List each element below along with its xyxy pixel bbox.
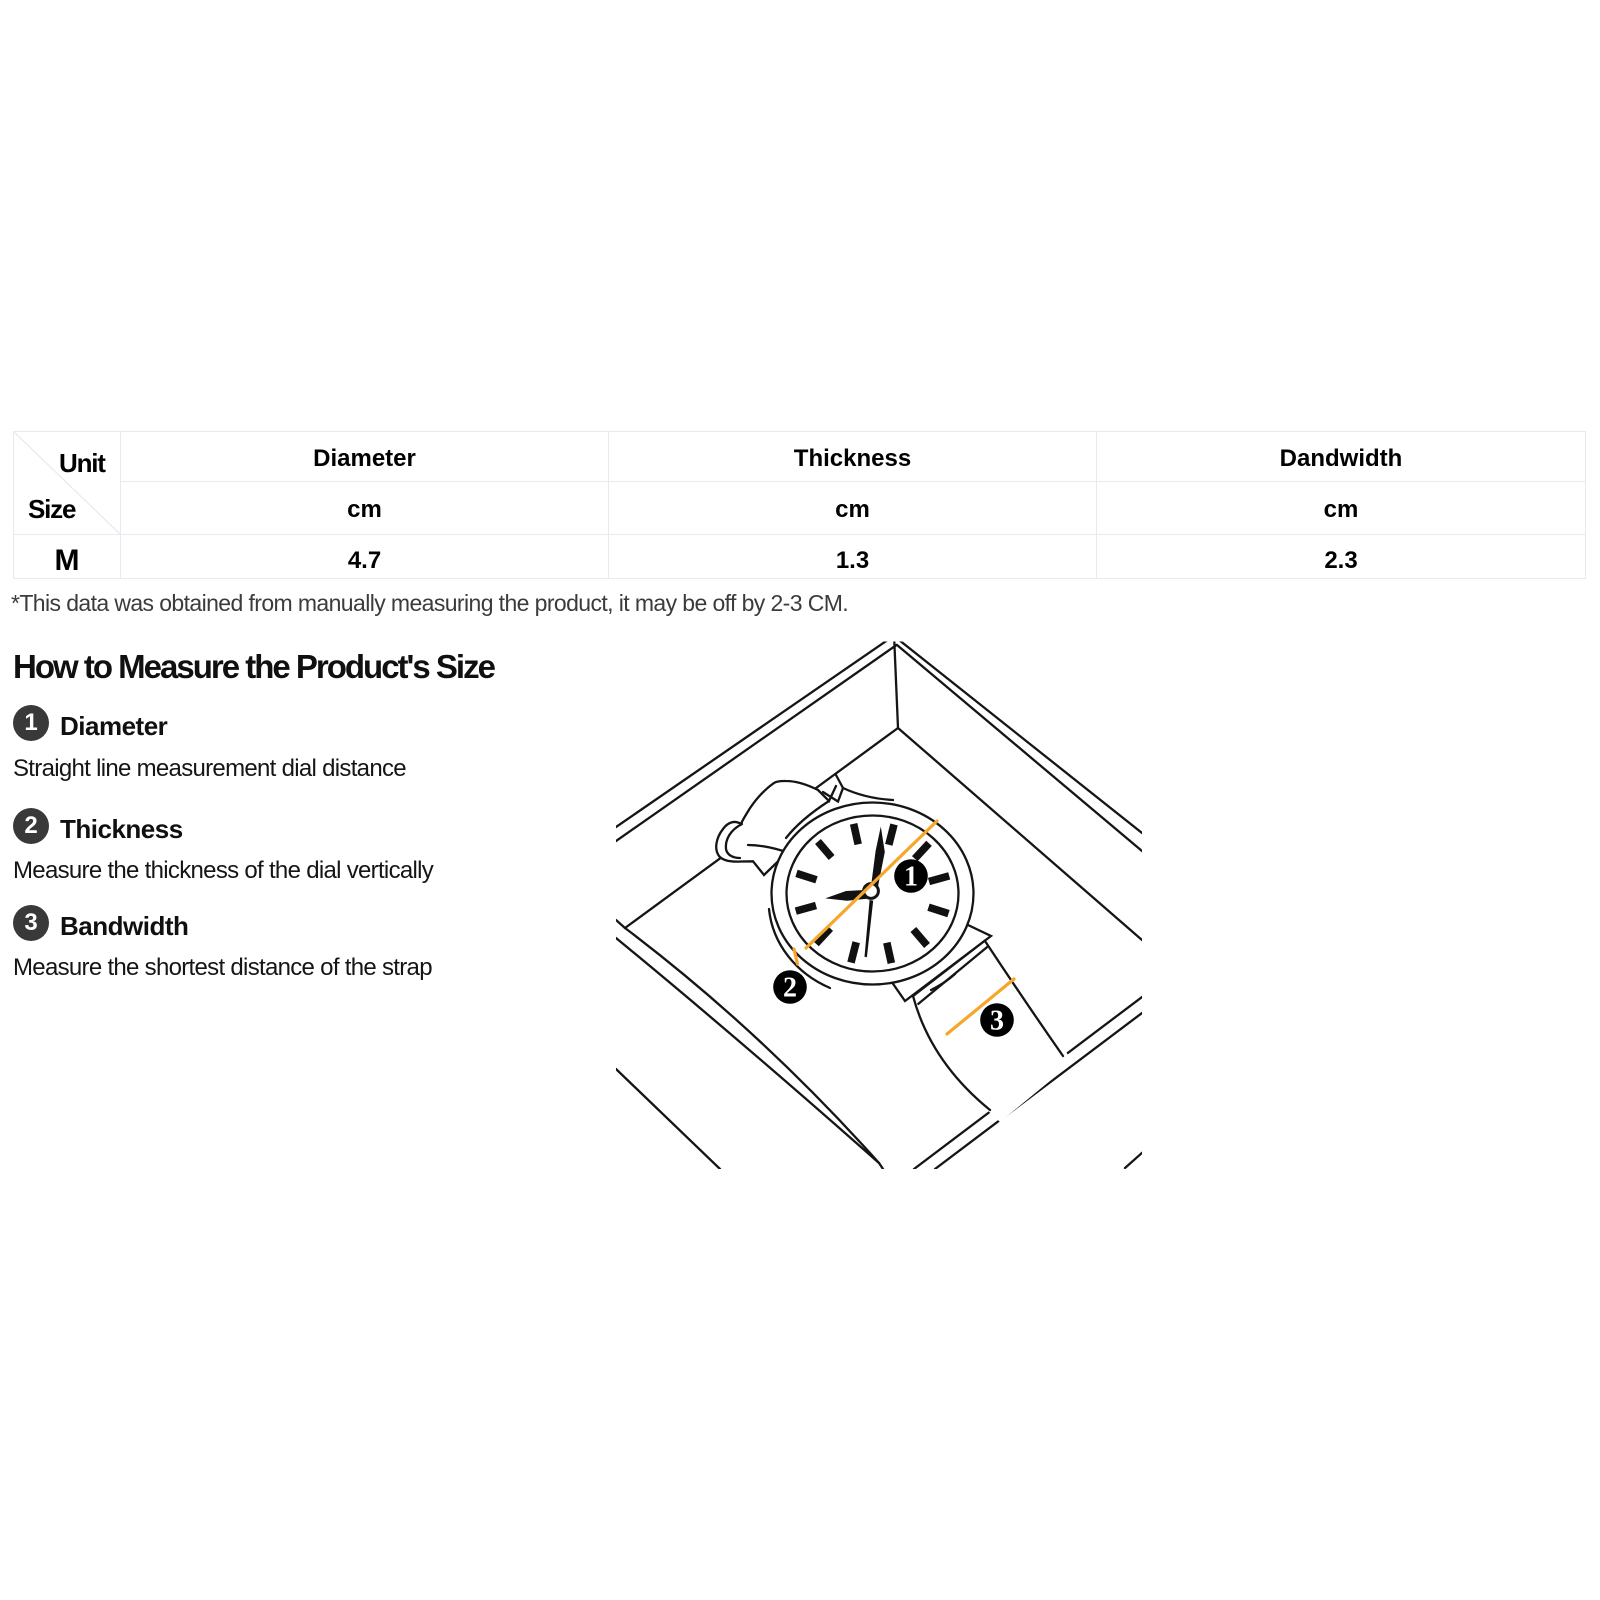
- svg-text:3: 3: [990, 1006, 1004, 1037]
- svg-text:1: 1: [904, 862, 918, 893]
- svg-text:2: 2: [783, 973, 797, 1004]
